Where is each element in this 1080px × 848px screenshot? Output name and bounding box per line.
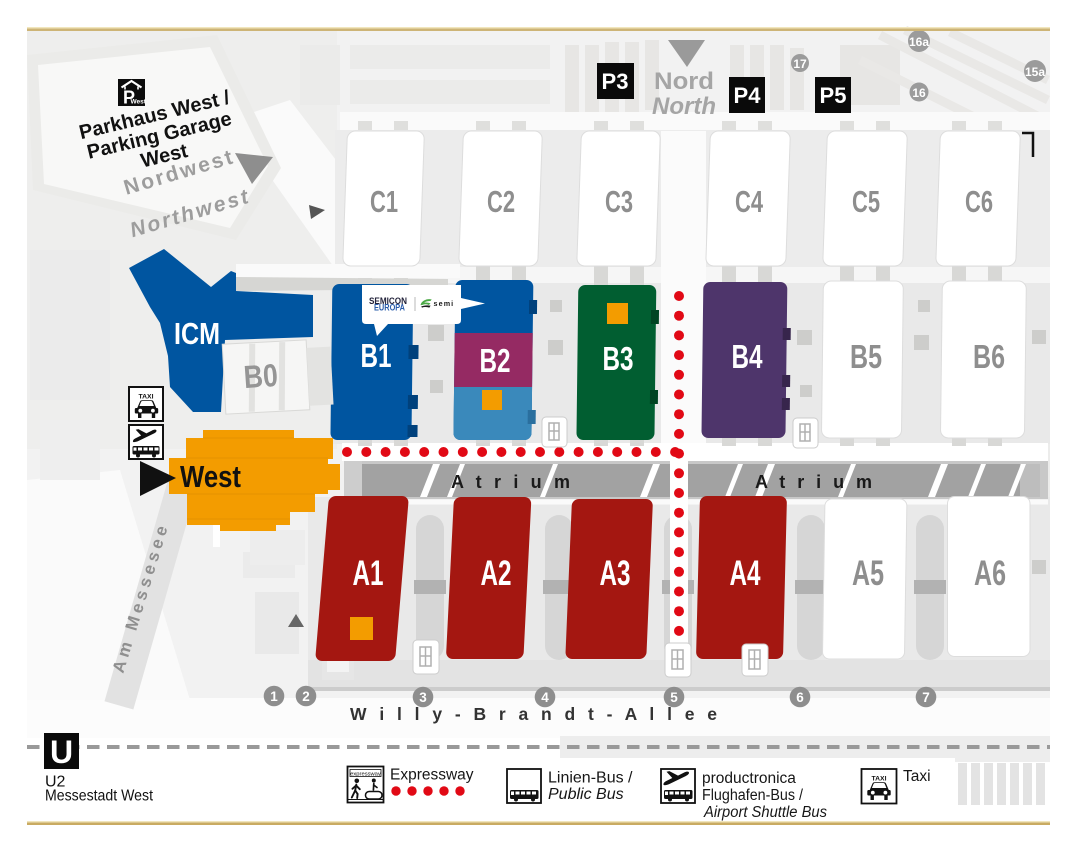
svg-text:A6: A6 xyxy=(974,554,1006,593)
svg-text:C6: C6 xyxy=(965,184,993,219)
svg-text:B4: B4 xyxy=(732,338,763,375)
svg-text:Public Bus: Public Bus xyxy=(548,786,624,803)
svg-text:A2: A2 xyxy=(481,554,512,593)
svg-text:6: 6 xyxy=(796,690,804,705)
svg-text:Taxi: Taxi xyxy=(903,768,931,785)
svg-text:Messestadt West: Messestadt West xyxy=(45,788,153,805)
svg-text:4: 4 xyxy=(541,690,549,705)
svg-text:B5: B5 xyxy=(850,338,882,375)
svg-text:C1: C1 xyxy=(370,184,398,219)
svg-text:Flughafen-Bus /: Flughafen-Bus / xyxy=(702,787,804,804)
svg-text:1: 1 xyxy=(270,689,278,704)
svg-text:B1: B1 xyxy=(361,337,392,374)
svg-text:A3: A3 xyxy=(600,554,631,593)
svg-text:West: West xyxy=(180,459,241,494)
svg-text:North: North xyxy=(652,93,716,120)
svg-text:W i l l y - B r a n d t - A l: W i l l y - B r a n d t - A l l e e xyxy=(350,704,717,724)
svg-text:C4: C4 xyxy=(735,184,764,219)
svg-text:B0: B0 xyxy=(243,357,279,395)
svg-text:C5: C5 xyxy=(852,184,880,219)
svg-text:B6: B6 xyxy=(973,338,1005,375)
svg-text:EUROPA: EUROPA xyxy=(374,303,405,314)
svg-text:3: 3 xyxy=(419,690,427,705)
svg-text:TAXI: TAXI xyxy=(872,776,887,783)
svg-text:Airport Shuttle Bus: Airport Shuttle Bus xyxy=(703,804,827,821)
svg-text:P5: P5 xyxy=(820,83,847,108)
svg-text:P4: P4 xyxy=(734,83,762,108)
svg-text:Nord: Nord xyxy=(654,68,714,95)
svg-text:5: 5 xyxy=(670,690,678,705)
svg-text:Expressway: Expressway xyxy=(390,767,474,784)
svg-text:P3: P3 xyxy=(602,69,629,94)
svg-text:A5: A5 xyxy=(852,554,884,593)
svg-text:17: 17 xyxy=(793,57,807,71)
svg-text:U: U xyxy=(50,734,73,770)
svg-text:2: 2 xyxy=(302,689,310,704)
svg-text:A1: A1 xyxy=(353,554,384,593)
svg-text:16a: 16a xyxy=(909,35,929,49)
svg-text:C3: C3 xyxy=(605,184,633,219)
svg-text:Linien-Bus /: Linien-Bus / xyxy=(548,770,633,787)
svg-text:expressway: expressway xyxy=(350,771,381,777)
svg-text:ICM: ICM xyxy=(174,316,220,351)
svg-text:C2: C2 xyxy=(487,184,515,219)
svg-text:A4: A4 xyxy=(730,554,761,593)
svg-text:productronica: productronica xyxy=(702,770,796,787)
svg-text:16: 16 xyxy=(912,86,926,100)
svg-text:7: 7 xyxy=(922,690,930,705)
svg-text:B3: B3 xyxy=(603,340,634,377)
svg-text:West: West xyxy=(131,99,147,106)
svg-text:15a: 15a xyxy=(1025,65,1045,79)
svg-text:TAXI: TAXI xyxy=(139,394,154,401)
svg-text:B2: B2 xyxy=(480,342,511,379)
svg-text:semi: semi xyxy=(434,299,455,308)
